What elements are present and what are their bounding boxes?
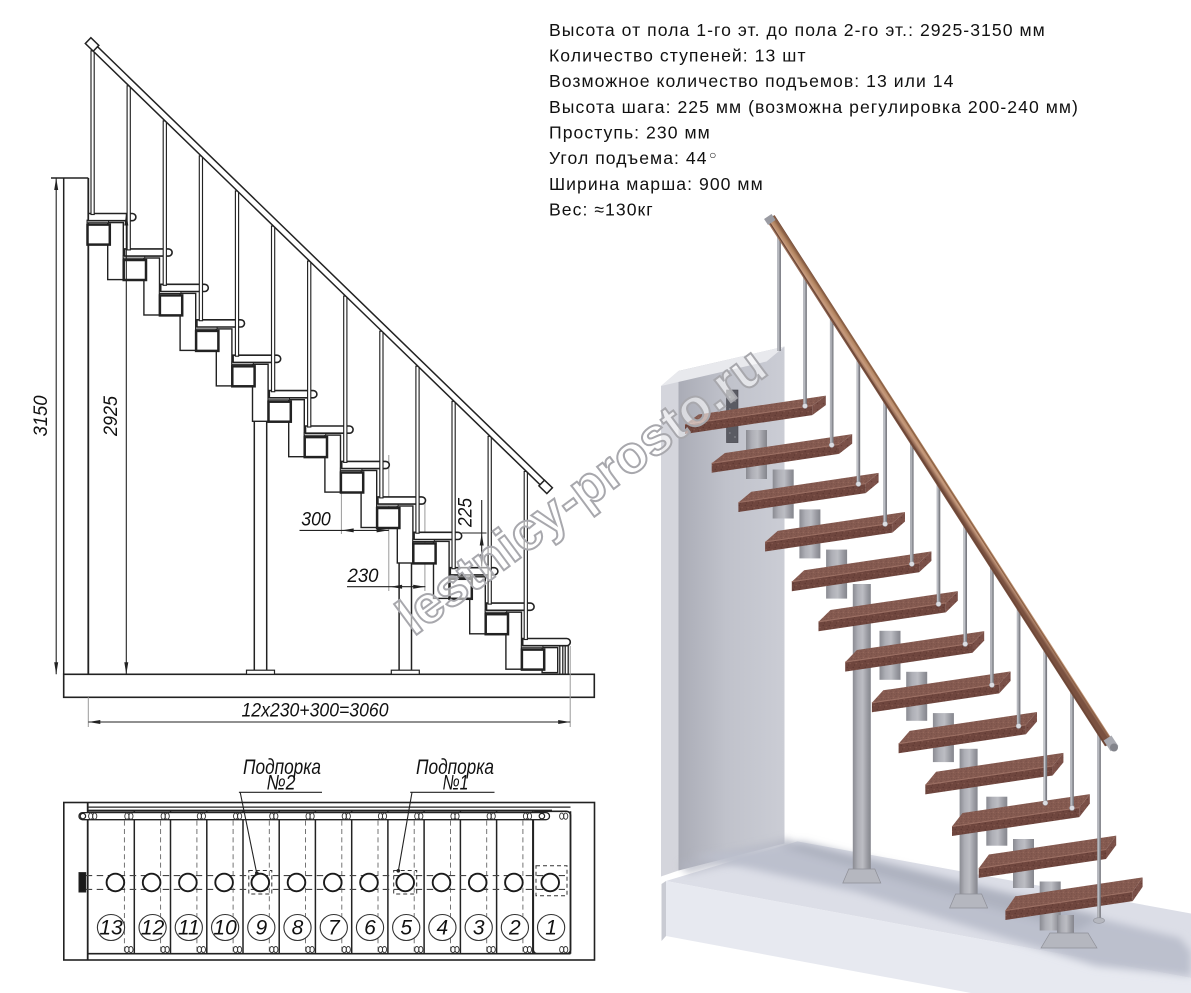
svg-text:№2: №2 [267,772,296,795]
svg-text:230: 230 [347,566,379,587]
svg-text:Количество ступеней: 13 шт: Количество ступеней: 13 шт [549,46,807,66]
svg-text:7: 7 [328,917,341,940]
svg-text:2925: 2925 [101,396,122,437]
svg-text:13: 13 [99,917,123,940]
svg-text:12x230+300=3060: 12x230+300=3060 [242,700,389,722]
svg-text:9: 9 [255,917,267,940]
svg-text:12: 12 [141,917,165,940]
svg-text:Высота шага: 225 мм (возможна: Высота шага: 225 мм (возможна регулировк… [549,97,1079,117]
svg-text:Проступь: 230 мм: Проступь: 230 мм [549,123,711,143]
svg-text:8: 8 [292,917,304,940]
svg-text:Вес: ≈130кг: Вес: ≈130кг [549,199,654,219]
svg-text:Угол подъема: 44○: Угол подъема: 44○ [549,148,717,168]
svg-text:3150: 3150 [31,395,52,436]
svg-text:225: 225 [456,498,477,528]
svg-text:11: 11 [178,917,200,940]
svg-text:Высота от пола 1-го эт. до пол: Высота от пола 1-го эт. до пола 2-го эт.… [549,20,1046,40]
svg-text:10: 10 [213,917,237,940]
svg-text:4: 4 [437,917,449,940]
svg-text:№1: №1 [443,772,469,795]
svg-text:2: 2 [508,917,521,940]
svg-text:3: 3 [473,917,485,940]
svg-text:Возможное количество подъемов:: Возможное количество подъемов: 13 или 14 [549,71,954,91]
svg-text:5: 5 [400,917,412,940]
svg-text:300: 300 [301,510,331,531]
svg-text:Ширина марша: 900 мм: Ширина марша: 900 мм [549,174,764,194]
svg-text:1: 1 [545,917,557,940]
svg-text:6: 6 [364,917,376,940]
